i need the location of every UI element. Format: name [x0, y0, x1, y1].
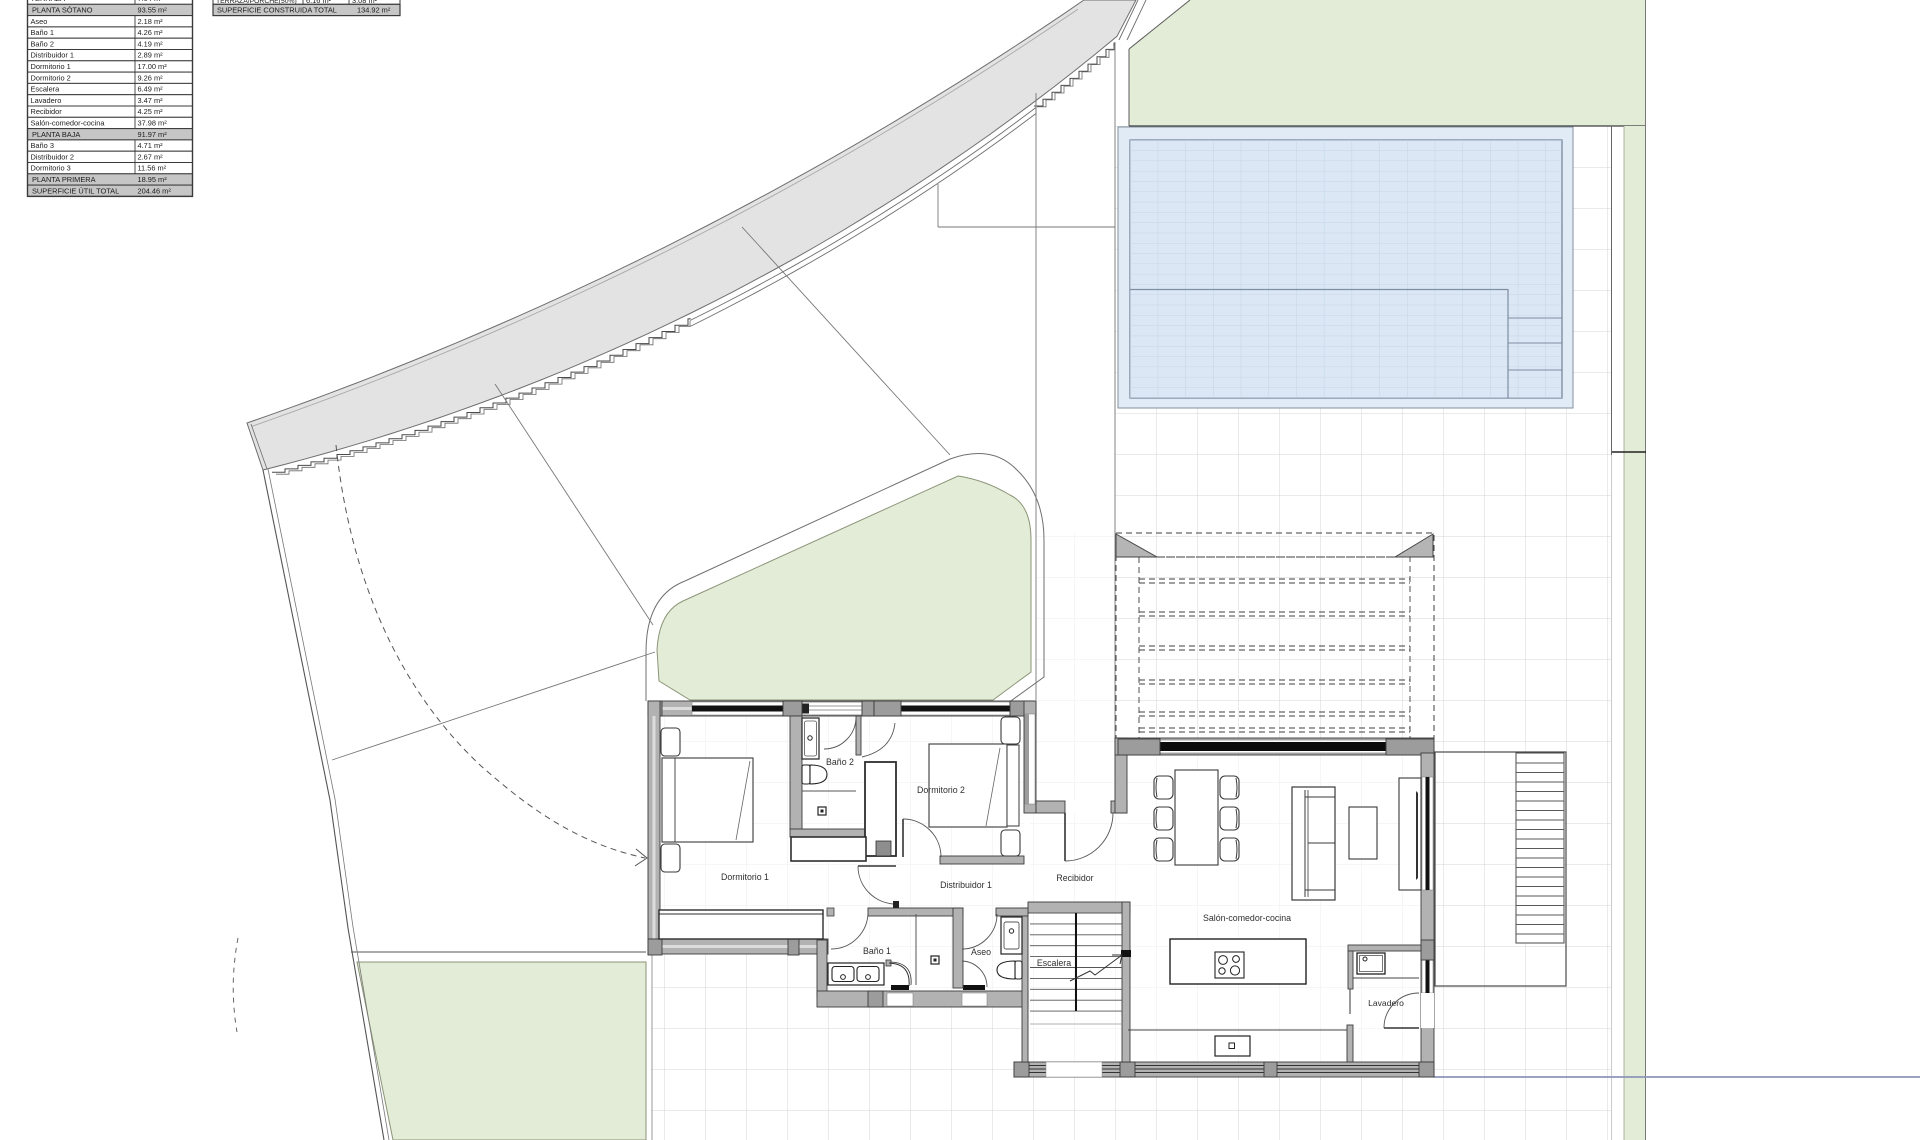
svg-text:9.26 m²: 9.26 m² — [138, 73, 164, 82]
svg-text:PLANTA BAJA: PLANTA BAJA — [32, 130, 80, 139]
svg-text:Baño 1: Baño 1 — [863, 946, 891, 956]
svg-text:PLANTA PRIMERA: PLANTA PRIMERA — [32, 175, 96, 184]
svg-text:Recibidor: Recibidor — [31, 107, 63, 116]
svg-text:Aseo: Aseo — [971, 947, 991, 957]
svg-text:134.92 m²: 134.92 m² — [357, 6, 391, 15]
svg-text:204.46 m²: 204.46 m² — [138, 186, 172, 195]
svg-text:11.56 m²: 11.56 m² — [138, 164, 167, 173]
svg-text:Escalera: Escalera — [1037, 958, 1071, 968]
svg-text:Recibidor: Recibidor — [1056, 873, 1093, 883]
svg-text:18.95 m²: 18.95 m² — [138, 175, 168, 184]
svg-text:Dormitorio 2: Dormitorio 2 — [31, 73, 71, 82]
svg-text:17.00 m²: 17.00 m² — [138, 62, 168, 71]
svg-text:2.89 m²: 2.89 m² — [138, 51, 164, 60]
svg-text:Baño 3: Baño 3 — [31, 141, 54, 150]
svg-text:6.49 m²: 6.49 m² — [138, 85, 164, 94]
svg-text:TERRAZA: TERRAZA — [31, 0, 66, 3]
svg-text:Dormitorio 1: Dormitorio 1 — [31, 62, 71, 71]
svg-text:Baño 2: Baño 2 — [31, 39, 54, 48]
svg-text:Escalera: Escalera — [31, 85, 61, 94]
svg-text:2.18 m²: 2.18 m² — [138, 17, 164, 26]
svg-text:Dormitorio 2: Dormitorio 2 — [917, 785, 965, 795]
svg-text:4.19 m²: 4.19 m² — [138, 39, 164, 48]
svg-text:3.47 m²: 3.47 m² — [138, 96, 164, 105]
svg-text:Lavadero: Lavadero — [1368, 998, 1404, 1008]
svg-text:Dormitorio 3: Dormitorio 3 — [31, 164, 71, 173]
svg-text:2.67 m²: 2.67 m² — [138, 152, 164, 161]
svg-text:SUPERFICIE ÚTIL TOTAL: SUPERFICIE ÚTIL TOTAL — [32, 186, 119, 195]
svg-text:4.71 m²: 4.71 m² — [138, 141, 164, 150]
svg-text:93.55 m²: 93.55 m² — [138, 6, 168, 15]
svg-text:37.98 m²: 37.98 m² — [138, 119, 168, 128]
svg-text:Salón-comedor-cocina: Salón-comedor-cocina — [31, 119, 106, 128]
svg-text:4.25 m²: 4.25 m² — [138, 107, 164, 116]
svg-text:Dormitorio 1: Dormitorio 1 — [721, 872, 769, 882]
svg-text:SUPERFICIE CONSTRUIDA TOTAL: SUPERFICIE CONSTRUIDA TOTAL — [217, 6, 337, 15]
svg-text:PLANTA SÓTANO: PLANTA SÓTANO — [32, 6, 93, 15]
svg-text:Distribuidor 1: Distribuidor 1 — [940, 880, 992, 890]
svg-text:4.26 m²: 4.26 m² — [138, 28, 164, 37]
svg-text:91.97 m²: 91.97 m² — [138, 130, 168, 139]
svg-text:7.04 m²: 7.04 m² — [138, 0, 164, 3]
svg-text:Lavadero: Lavadero — [31, 96, 62, 105]
svg-text:Baño 2: Baño 2 — [826, 757, 854, 767]
svg-text:Distribuidor 2: Distribuidor 2 — [31, 152, 75, 161]
svg-text:Distribuidor 1: Distribuidor 1 — [31, 51, 75, 60]
svg-text:Salón-comedor-cocina: Salón-comedor-cocina — [1203, 913, 1291, 923]
svg-text:Baño 1: Baño 1 — [31, 28, 54, 37]
svg-text:Aseo: Aseo — [31, 17, 48, 26]
